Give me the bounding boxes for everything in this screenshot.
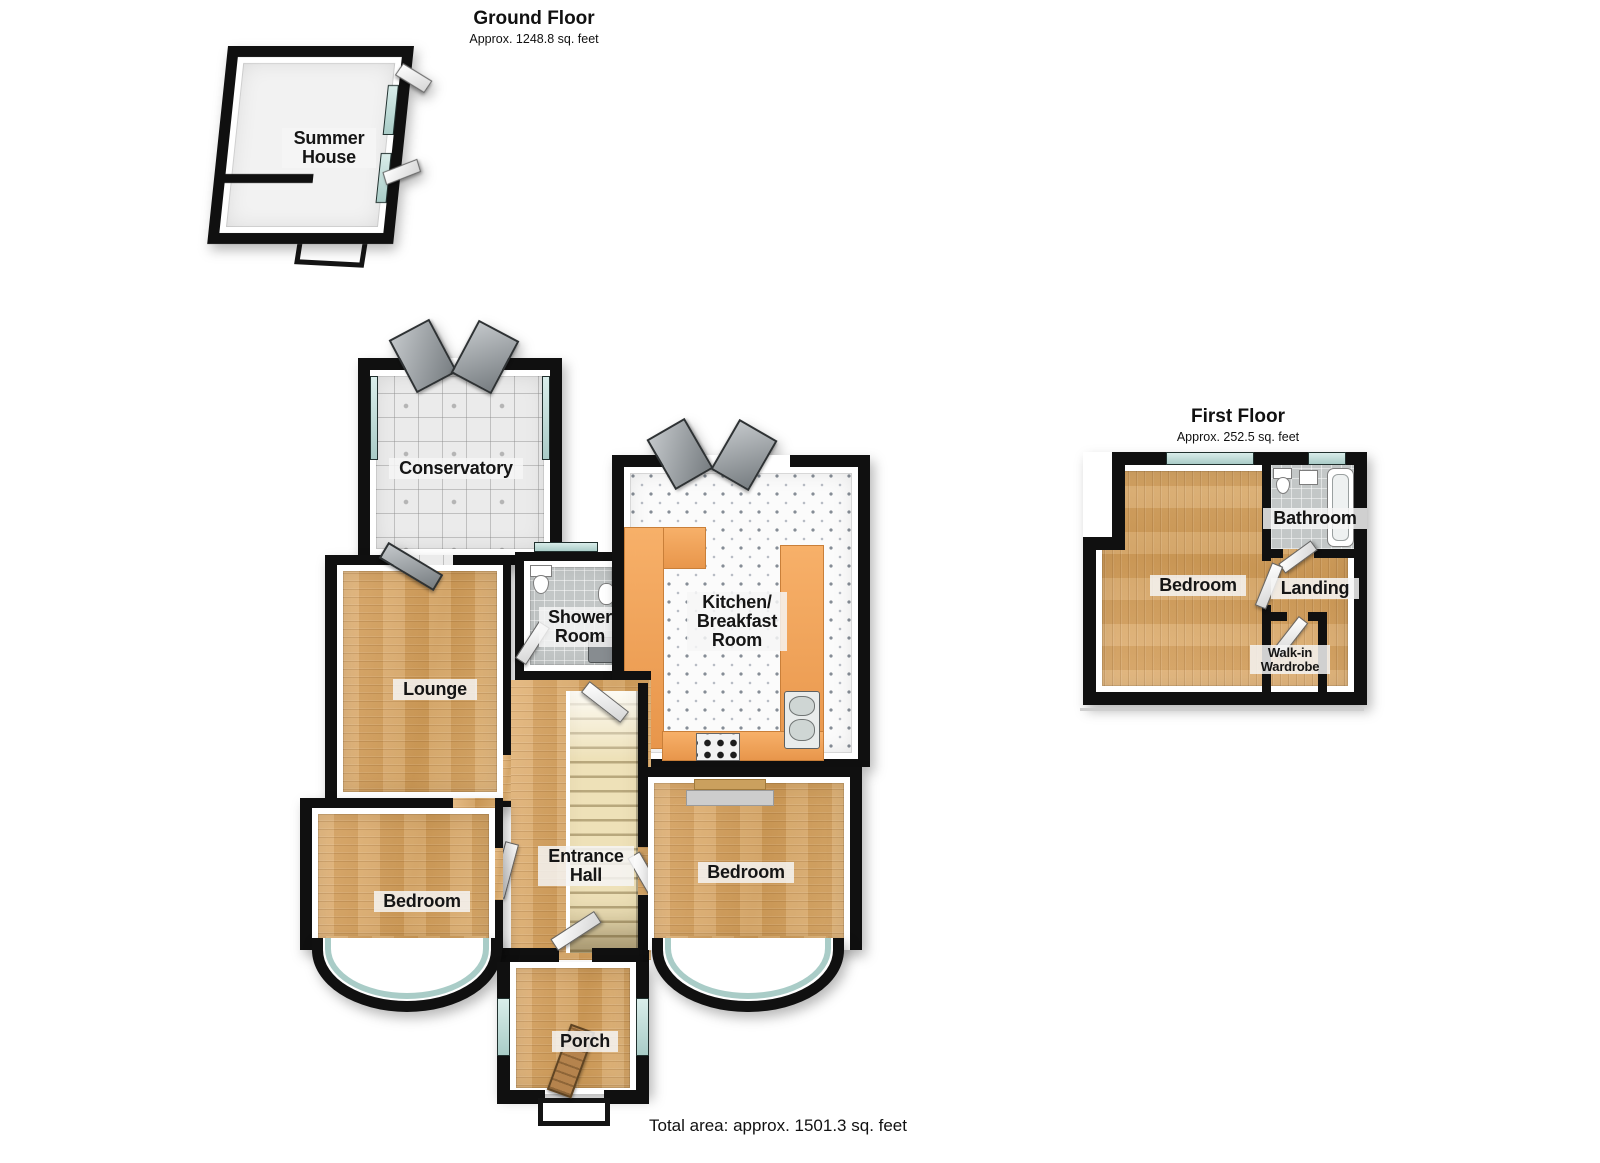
first-floor-bedroom-window-icon: [1166, 452, 1254, 465]
conservatory-door-icon: [451, 320, 520, 395]
sink-basin: [789, 696, 815, 716]
bathroom-window-icon: [1308, 452, 1346, 465]
room-label-bedroom-left: Bedroom: [374, 891, 470, 912]
room-bedroom-left: [300, 798, 503, 950]
hall-porch-wall: [592, 948, 649, 962]
room-label-conservatory: Conservatory: [389, 458, 523, 479]
first-floor-shadow-line: [1080, 708, 1364, 711]
bedroom-opening: [495, 848, 503, 900]
lounge-hall-opening: [503, 755, 511, 801]
hall-porch-wall: [497, 948, 559, 962]
ground-floor-title-block: Ground Floor Approx. 1248.8 sq. feet: [384, 8, 684, 46]
wardrobe-wall: [1308, 612, 1318, 621]
bay-window-glass: [665, 938, 831, 999]
room-label-shower-room: Shower Room: [539, 607, 621, 647]
bay-window-glass: [325, 938, 489, 999]
staircase: [566, 691, 638, 953]
bathroom-wall: [1271, 549, 1283, 558]
toilet-icon: [533, 575, 549, 594]
wardrobe-wall: [1271, 612, 1287, 621]
hall-bedroom-wall: [638, 895, 648, 950]
stove-icon: [696, 733, 740, 761]
porch-window-icon: [636, 998, 649, 1056]
kitchen-sink-icon: [784, 691, 820, 749]
sink-basin: [789, 719, 815, 741]
room-bedroom-right: [648, 767, 862, 950]
room-label-entrance-hall: Entrance Hall: [538, 846, 634, 886]
room-label-porch: Porch: [552, 1031, 618, 1052]
summer-house-window-pane-icon: [395, 63, 433, 93]
ground-floor-area: Approx. 1248.8 sq. feet: [384, 32, 684, 46]
room-label-summer-house: Summer House: [282, 128, 376, 168]
porch-front-wall: [604, 1090, 649, 1104]
room-label-landing: Landing: [1271, 578, 1359, 599]
summer-house-window-icon: [383, 85, 399, 135]
bay-window-icon: [312, 938, 502, 1012]
porch-window-icon: [497, 998, 510, 1056]
conservatory-window-icon: [370, 376, 378, 460]
bathroom-wall: [1314, 549, 1354, 558]
first-floor-area: Approx. 252.5 sq. feet: [1088, 430, 1388, 444]
mantel: [694, 779, 766, 790]
sink-icon: [1299, 470, 1318, 485]
hall-bedroom-wall: [638, 767, 648, 847]
room-label-ff-bedroom: Bedroom: [1150, 575, 1246, 596]
bay-window-icon: [652, 938, 844, 1012]
bedroom-opening: [453, 798, 495, 808]
first-floor-title: First Floor: [1088, 406, 1388, 428]
first-floor-title-block: First Floor Approx. 252.5 sq. feet: [1088, 406, 1388, 444]
ground-floor-title: Ground Floor: [384, 8, 684, 30]
hearth: [686, 790, 774, 806]
room-label-bathroom: Bathroom: [1263, 508, 1367, 529]
room-label-kitchen: Kitchen/ Breakfast Room: [687, 592, 787, 651]
kitchen-window-pane-icon: [646, 418, 713, 490]
conservatory-window-icon: [542, 376, 550, 460]
first-floor-wall-notch: [1083, 452, 1125, 550]
kitchen-window-pane-icon: [710, 419, 777, 491]
conservatory-door-icon: [389, 319, 458, 394]
room-label-lounge: Lounge: [393, 679, 477, 700]
room-label-bedroom-right: Bedroom: [698, 862, 794, 883]
room-label-wardrobe: Walk-in Wardrobe: [1250, 645, 1330, 674]
floor-plan-canvas: Ground Floor Approx. 1248.8 sq. feet Fir…: [0, 0, 1600, 1163]
summer-house-partition-wall: [225, 174, 314, 183]
stairs-side-wall: [638, 683, 648, 771]
hall-top-wall: [624, 671, 651, 680]
total-area-text: Total area: approx. 1501.3 sq. feet: [528, 1116, 1028, 1136]
shower-room-window-icon: [534, 542, 598, 552]
